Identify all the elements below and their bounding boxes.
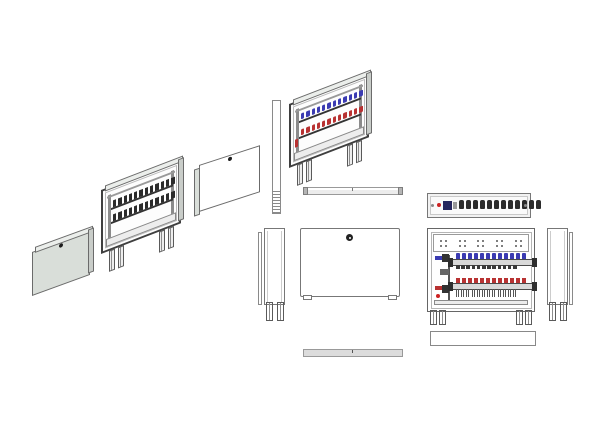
mount-bracket-left	[108, 194, 111, 241]
eurocone-fitting-row	[456, 289, 517, 297]
fitting-icon	[498, 289, 502, 297]
knockout-holes-icon	[459, 240, 466, 247]
terminal-icon	[459, 200, 464, 209]
cover-lock-icon	[346, 234, 353, 241]
cabinet-side-face	[366, 71, 372, 135]
nut-icon	[498, 265, 502, 269]
leg	[297, 163, 303, 186]
knockout-holes-icon	[477, 240, 484, 247]
nut-icon	[487, 265, 491, 269]
terminal-icon	[508, 200, 513, 209]
cover-edge-view-left	[258, 232, 262, 305]
leg	[109, 249, 115, 272]
controller-module	[443, 201, 452, 210]
knockout-holes-icon	[440, 240, 447, 247]
wiring-rail	[427, 193, 531, 218]
nut-icon	[461, 265, 465, 269]
cabinet-legs-right	[347, 140, 362, 167]
front-cover-panel	[300, 228, 400, 297]
iso-cover-panel-filled	[32, 231, 90, 296]
fitting-icon	[461, 289, 465, 297]
side-view-right-legs	[549, 302, 567, 321]
rail-end-cap	[303, 187, 308, 195]
terminal-icon	[529, 200, 534, 209]
cabinet-legs-right	[159, 226, 174, 253]
nut-icon	[456, 265, 460, 269]
fitting-icon	[492, 289, 496, 297]
drawing-canvas	[0, 0, 600, 424]
screw-icon	[524, 204, 527, 207]
leg	[430, 310, 437, 325]
nut-icon	[513, 265, 517, 269]
knockout-strip	[433, 234, 529, 252]
cabinet-legs-left	[430, 310, 446, 325]
fitting-icon	[487, 289, 491, 297]
pump-fitting	[440, 269, 449, 275]
leg	[306, 159, 312, 182]
front-cabinet-view	[427, 228, 535, 312]
fitting-icon	[466, 289, 470, 297]
leg	[516, 310, 523, 325]
flow-meter-icon	[359, 90, 362, 97]
red-handle-icon	[295, 139, 298, 148]
screw-icon	[431, 204, 434, 207]
mount-bracket-left	[296, 108, 299, 155]
terminal-icon	[494, 200, 499, 209]
cover-edge-view-right	[569, 232, 573, 305]
nut-icon	[508, 265, 512, 269]
rail-hatch	[273, 191, 280, 213]
terminal-icon	[473, 200, 478, 209]
fitting-icon	[503, 289, 507, 297]
panel-top-edge	[35, 226, 93, 253]
cover-lock-icon	[228, 156, 232, 161]
knockout-holes-icon	[496, 240, 503, 247]
fitting-icon	[513, 289, 517, 297]
actuator-terminal-row	[459, 200, 541, 209]
iso-mounting-rail	[272, 100, 281, 214]
terminal-icon	[536, 200, 541, 209]
panel-left-edge	[194, 168, 200, 217]
rail-end-cap	[398, 187, 403, 195]
center-mark	[352, 350, 353, 353]
leg	[168, 226, 174, 249]
side-view-left	[264, 228, 285, 305]
fitting-icon	[477, 289, 481, 297]
leg	[560, 302, 567, 321]
panel-right-edge	[88, 227, 94, 273]
nut-icon	[482, 265, 486, 269]
iso-cover-panel-outline	[199, 145, 260, 212]
cover-lock-icon	[59, 243, 63, 248]
iso-cabinet-assembled	[289, 73, 369, 168]
nut-icon	[503, 265, 507, 269]
indicator-led-icon	[437, 203, 441, 207]
bottom-profile-rail	[303, 349, 403, 357]
fitting-icon	[482, 289, 486, 297]
leg	[118, 245, 124, 268]
relay-block	[453, 202, 457, 209]
cabinet-legs-left	[109, 245, 124, 272]
cabinet-legs-left	[297, 159, 312, 186]
leg	[159, 229, 165, 252]
side-view-right	[547, 228, 568, 305]
leg	[356, 140, 362, 163]
bottom-support-rail	[434, 300, 528, 305]
plinth-panel	[430, 331, 536, 346]
leg	[277, 302, 284, 321]
panel-foot	[388, 295, 397, 300]
fitting-icon	[508, 289, 512, 297]
top-profile-rail	[303, 187, 403, 195]
leg	[525, 310, 532, 325]
leg	[347, 143, 353, 166]
nut-icon	[466, 265, 470, 269]
valve-cap-icon	[359, 106, 362, 113]
iso-cabinet-open	[101, 159, 181, 254]
leg	[266, 302, 273, 321]
cabinet-legs-right	[516, 310, 532, 325]
center-mark	[352, 188, 353, 191]
terminal-icon	[515, 200, 520, 209]
panel-foot	[303, 295, 312, 300]
union-nut-row	[456, 265, 517, 269]
leg	[549, 302, 556, 321]
terminal-icon	[501, 200, 506, 209]
thermometer-icon	[436, 294, 440, 298]
fitting-icon	[456, 289, 460, 297]
knockout-holes-icon	[515, 240, 522, 247]
nut-icon	[472, 265, 476, 269]
cabinet-side-face	[178, 157, 184, 221]
leg	[439, 310, 446, 325]
terminal-icon	[466, 200, 471, 209]
fitting-icon	[472, 289, 476, 297]
terminal-icon	[480, 200, 485, 209]
nut-icon	[492, 265, 496, 269]
side-view-left-legs	[266, 302, 284, 321]
terminal-icon	[487, 200, 492, 209]
nut-icon	[477, 265, 481, 269]
